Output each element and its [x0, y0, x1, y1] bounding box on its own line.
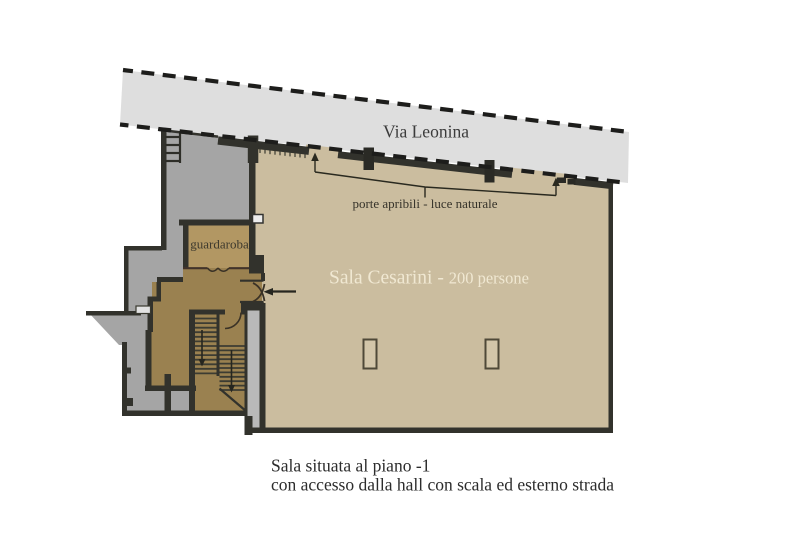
svg-text:con accesso dalla hall con sca: con accesso dalla hall con scala ed este…	[271, 475, 614, 495]
svg-text:guardaroba: guardaroba	[190, 237, 249, 252]
svg-text:porte apribili - luce naturale: porte apribili - luce naturale	[352, 196, 497, 211]
svg-text:Sala Cesarini - 200 persone: Sala Cesarini - 200 persone	[329, 268, 529, 289]
svg-text:Via Leonina: Via Leonina	[383, 122, 469, 142]
svg-text:Sala situata al piano -1: Sala situata al piano -1	[271, 456, 430, 476]
